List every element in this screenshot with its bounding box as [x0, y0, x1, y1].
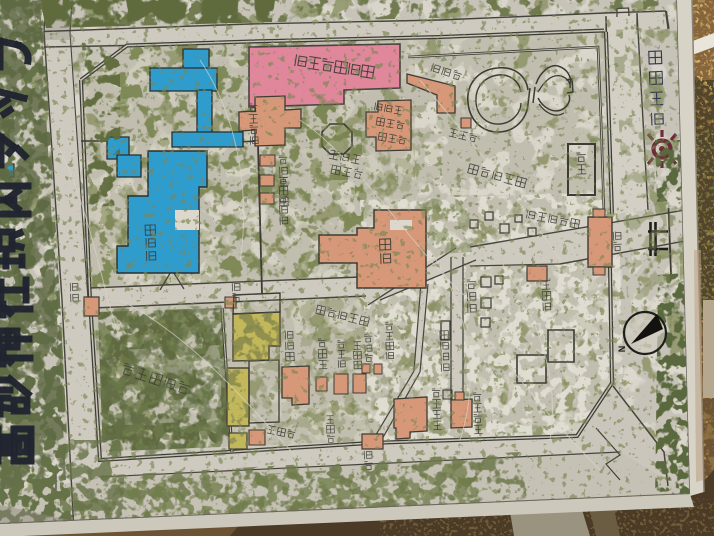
svg-text:N: N [617, 346, 627, 353]
